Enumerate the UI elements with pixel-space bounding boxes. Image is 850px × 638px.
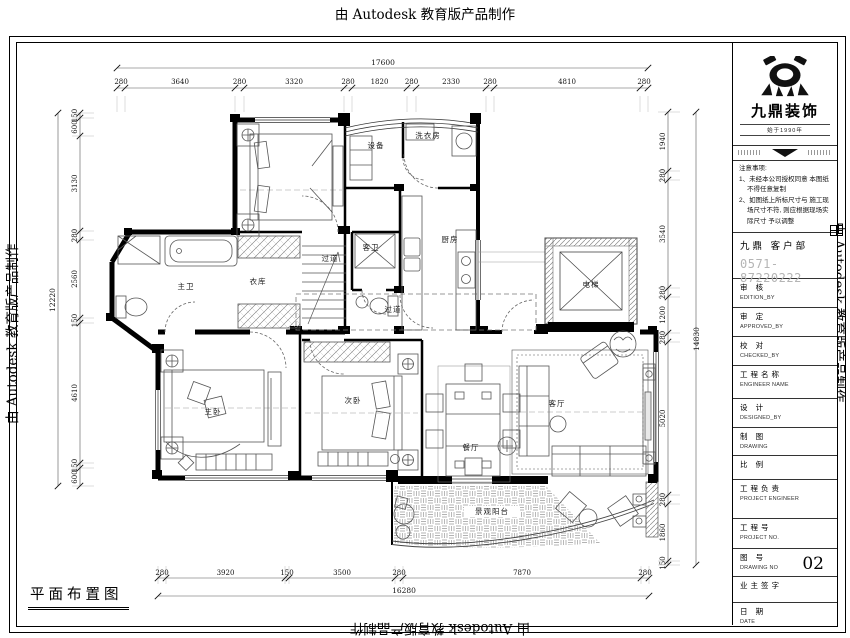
row-label-cn: 工程号 xyxy=(740,522,779,533)
cad-sheet: 由 Autodesk 教育版产品制作 由 Autodesk 教育版产品制作 由 … xyxy=(0,0,850,638)
dim-bottom-3: 3500 xyxy=(333,569,351,577)
row-label-cn: 工程负责 xyxy=(740,483,799,494)
dim-top-9: 4810 xyxy=(558,78,576,86)
room-label-canting: 餐厅 xyxy=(463,443,480,452)
room-label-kewei: 客卫 xyxy=(363,242,380,252)
row-label-cn: 日 期 xyxy=(740,606,766,617)
dim-left-8: 600 xyxy=(71,470,79,483)
room-label-zhuwo: 主卧 xyxy=(205,406,222,416)
title-row-10: 图 号DRAWING NO02 xyxy=(733,549,837,577)
dim-top-8: 280 xyxy=(483,78,496,86)
title-row-8: 工程负责PROJECT ENGINEER xyxy=(733,480,837,519)
dim-right-0: 1940 xyxy=(659,133,667,151)
dim-bottom-2: 150 xyxy=(280,569,293,577)
title-block: 九鼎装饰 始于1990年 注意事项: 1、未经本公司授权同意 本图纸不得任意复制… xyxy=(732,43,837,625)
dim-right-8: 1860 xyxy=(659,524,667,542)
dim-right-4: 1200 xyxy=(659,306,667,324)
dept-phone: 0571-87220222 xyxy=(740,257,830,285)
room-label-xiyifang: 洗衣房 xyxy=(415,130,441,140)
title-row-12: 日 期DATE xyxy=(733,603,837,625)
note-item-2: 2、如图纸上所标尺寸与 施工现场尺寸不符, 则应根据现场实际尺寸 予以调整 xyxy=(739,196,831,226)
title-row-3: 校 对CHECKED_BY xyxy=(733,337,837,366)
row-label-en: EDITION_BY xyxy=(740,295,775,301)
dining-set xyxy=(426,364,520,482)
notes-items: 1、未经本公司授权同意 本图纸不得任意复制2、如图纸上所标尺寸与 施工现场尺寸不… xyxy=(739,175,831,226)
micro-text-right xyxy=(808,150,832,155)
dim-chain-bottom: 28039201503500280787028016280 xyxy=(155,566,652,599)
stamp-row xyxy=(733,146,837,162)
dim-top-7: 2330 xyxy=(442,78,460,86)
dim-top-6: 280 xyxy=(405,78,418,86)
brand-since: 始于1990年 xyxy=(740,124,829,136)
micro-text-left xyxy=(738,150,762,155)
dim-top-1: 3640 xyxy=(171,78,189,86)
dim-chain-right: 1940280354028012002805020280186015014830 xyxy=(658,109,701,570)
room-label-dianti: 电梯 xyxy=(583,279,600,289)
row-label-en: DESIGNED_BY xyxy=(740,415,781,421)
wardrobe-top xyxy=(238,236,300,258)
title-row-2: 审 定APPROVED_BY xyxy=(733,308,837,337)
dim-chain-left: 15060031302802560150461015060012220 xyxy=(48,109,94,489)
dim-left-5: 150 xyxy=(71,314,79,327)
dim-right-3: 280 xyxy=(659,286,667,299)
dim-left-0: 150 xyxy=(71,109,79,122)
room-label-yiku: 衣库 xyxy=(250,276,267,286)
jiuding-logo-icon xyxy=(753,56,817,98)
washer xyxy=(406,124,476,156)
dim-top-3: 3320 xyxy=(285,78,303,86)
dim-left-2: 3130 xyxy=(71,175,79,193)
title-row-6: 制 图DRAWING xyxy=(733,428,837,456)
dim-right-6: 5020 xyxy=(659,410,667,428)
bathtub xyxy=(165,236,237,266)
dim-total-right: 14830 xyxy=(692,327,701,351)
notes-heading: 注意事项: xyxy=(739,164,831,174)
dim-right-5: 280 xyxy=(659,331,667,344)
dim-top-4: 280 xyxy=(341,78,354,86)
title-row-11: 业主签字 xyxy=(733,577,837,603)
room-label-chufang: 厨房 xyxy=(442,234,459,244)
toilet-master xyxy=(116,296,147,318)
row-label-en: DRAWING xyxy=(740,444,768,450)
row-label-en: PROJECT NO. xyxy=(740,535,779,541)
corridor-ceiling xyxy=(296,294,536,330)
room-label-ciwo: 次卧 xyxy=(345,395,362,405)
dim-bottom-0: 280 xyxy=(155,569,168,577)
room-label-yangtai: 景观阳台 xyxy=(475,506,509,516)
room-label-zhuwei: 主卫 xyxy=(178,281,195,291)
row-label-cn: 校 对 xyxy=(740,340,779,351)
dim-total-bottom: 16280 xyxy=(392,586,416,595)
bay-window xyxy=(345,119,478,136)
title-row-7: 比 例 xyxy=(733,456,837,480)
row-label-cn: 设 计 xyxy=(740,402,781,413)
dim-left-1: 600 xyxy=(71,120,79,133)
dim-right-9: 150 xyxy=(659,556,667,569)
dim-total-top: 17600 xyxy=(371,58,395,67)
room-label-shebei: 设备 xyxy=(368,140,385,150)
dim-top-10: 280 xyxy=(637,78,650,86)
triangle-mark-icon xyxy=(772,149,798,157)
row-label-cn: 业主签字 xyxy=(740,580,782,591)
dept-name: 九鼎 客户部 xyxy=(740,238,830,252)
dim-left-4: 2560 xyxy=(71,270,79,288)
vanity-sink xyxy=(118,236,160,264)
note-item-1: 1、未经本公司授权同意 本图纸不得任意复制 xyxy=(739,175,831,195)
room-label-guodao1: 过道 xyxy=(322,253,339,263)
row-label-cn: 比 例 xyxy=(740,459,766,470)
title-row-4: 工程名称ENGINEER NAME xyxy=(733,366,837,399)
dim-top-0: 280 xyxy=(114,78,127,86)
dim-bottom-1: 3920 xyxy=(217,569,235,577)
row-label-en: DRAWING NO xyxy=(740,565,778,571)
dim-bottom-5: 7870 xyxy=(513,569,531,577)
dim-chain-top: 2803640280332028018202802330280481028017… xyxy=(114,58,651,112)
notes-section: 注意事项: 1、未经本公司授权同意 本图纸不得任意复制2、如图纸上所标尺寸与 施… xyxy=(733,161,837,233)
row-label-cn: 图 号 xyxy=(740,552,778,563)
row-label-cn: 工程名称 xyxy=(740,369,789,380)
dim-top-5: 1820 xyxy=(371,78,389,86)
dim-total-left: 12220 xyxy=(48,288,57,312)
balcony-side-wall xyxy=(646,482,658,537)
lobby-wall xyxy=(478,252,545,262)
room-label-keting: 客厅 xyxy=(549,398,566,408)
drawing-title: 平面布置图 xyxy=(28,583,129,610)
wardrobe-bottom xyxy=(238,304,300,328)
second-bed xyxy=(304,342,418,470)
row-label-en: CHECKED_BY xyxy=(740,353,779,359)
plot-stamp-icon xyxy=(830,225,843,236)
kitchen-counters xyxy=(402,196,476,330)
row-label-en: ENGINEER NAME xyxy=(740,382,789,388)
living-set xyxy=(498,331,655,476)
dim-right-1: 280 xyxy=(659,169,667,182)
dim-bottom-4: 280 xyxy=(392,569,405,577)
brand-name: 九鼎装饰 xyxy=(751,100,819,121)
row-label-en: DATE xyxy=(740,619,766,625)
dim-right-2: 3540 xyxy=(659,225,667,243)
row-label-en: APPROVED_BY xyxy=(740,324,783,330)
dim-left-3: 280 xyxy=(71,229,79,242)
title-row-9: 工程号PROJECT NO. xyxy=(733,519,837,549)
dept-section: 九鼎 客户部 0571-87220222 xyxy=(733,233,837,279)
room-label-guodao2: 过道 xyxy=(385,304,402,314)
dim-top-2: 280 xyxy=(233,78,246,86)
row-label-cn: 制 图 xyxy=(740,431,768,442)
title-row-5: 设 计DESIGNED_BY xyxy=(733,399,837,428)
dim-left-6: 4610 xyxy=(71,384,79,402)
guest-bed xyxy=(237,124,343,236)
drawing-number-value: 02 xyxy=(802,554,824,574)
title-block-rows: 审 核EDITION_BY审 定APPROVED_BY校 对CHECKED_BY… xyxy=(733,279,837,625)
floor-plan-drawing: 设备洗衣房客卫厨房过道过道主卫衣库主卧次卧餐厅客厅电梯景观阳台 28036402… xyxy=(0,0,850,638)
row-label-cn: 审 定 xyxy=(740,311,783,322)
brand-logo-section: 九鼎装饰 始于1990年 xyxy=(733,43,837,146)
row-label-en: PROJECT ENGINEER xyxy=(740,496,799,502)
dim-right-7: 280 xyxy=(659,493,667,506)
dim-left-7: 150 xyxy=(71,459,79,472)
dim-bottom-6: 280 xyxy=(638,569,651,577)
